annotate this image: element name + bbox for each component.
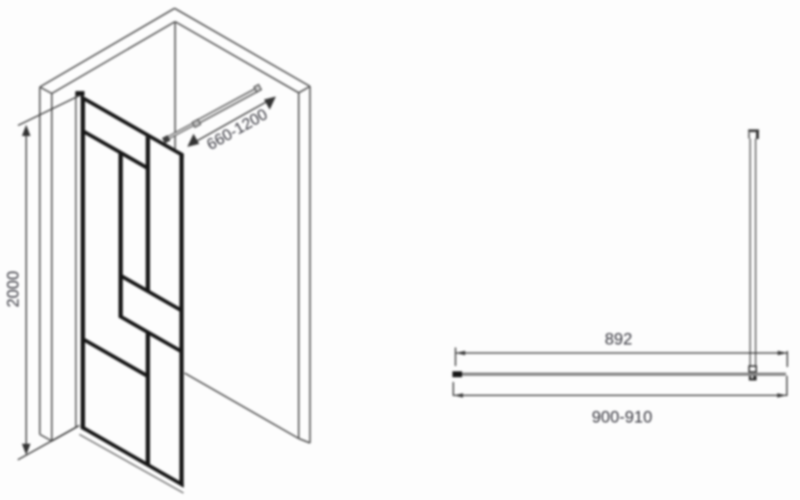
svg-text:2000: 2000 [4,271,22,308]
svg-text:900-910: 900-910 [592,409,653,427]
svg-text:892: 892 [605,331,633,349]
